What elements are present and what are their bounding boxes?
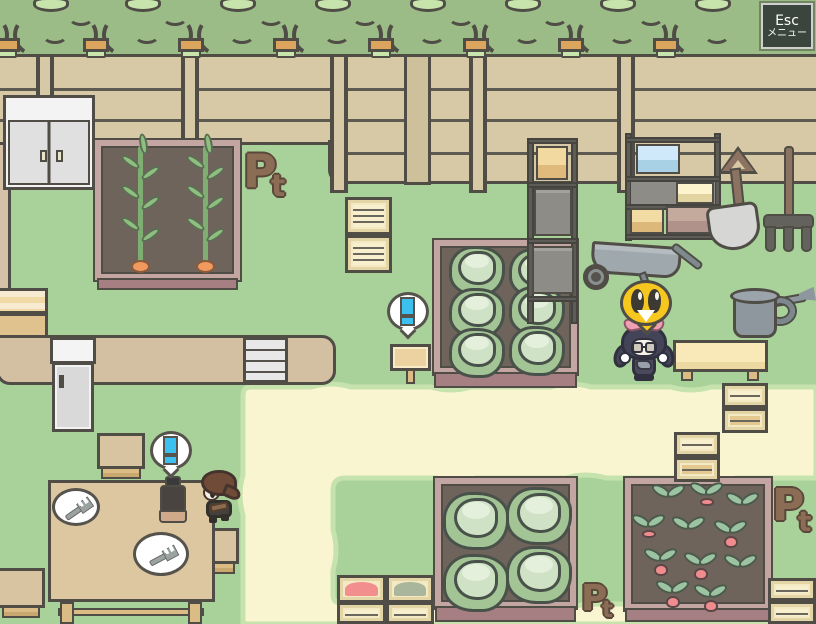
radish-sprout [651, 482, 687, 514]
slat-crate [768, 601, 816, 624]
fence-post [181, 57, 199, 146]
hedge-back-bush [600, 0, 636, 12]
cabinet-doors [8, 120, 90, 185]
hedge-smile-mark [638, 8, 664, 26]
slat-crate [345, 235, 392, 273]
hedge-gap-grass [371, 50, 391, 58]
feet [221, 514, 229, 521]
pitchfork-tine [801, 226, 812, 252]
cabbage [449, 328, 505, 378]
plate [52, 488, 100, 526]
fork-icon [147, 545, 178, 568]
cabbage [443, 492, 509, 550]
work-bench [673, 340, 768, 382]
hedge-smile-mark [258, 8, 284, 26]
shelf-box-tan [630, 208, 664, 234]
slat-crate [674, 457, 720, 482]
shelf-box-gray [534, 188, 572, 236]
hedge-gap-grass [561, 50, 581, 58]
fork-icon [63, 496, 93, 521]
hedge-back-bush [33, 0, 69, 12]
radish-sprout [671, 514, 707, 546]
cabbage [509, 326, 565, 376]
drawer-unit [243, 337, 288, 383]
slat-crate [337, 602, 386, 624]
radish-sprout [689, 480, 725, 512]
wheelbarrow-wheel [583, 264, 609, 290]
paw [657, 352, 669, 364]
stool [0, 568, 45, 618]
radish-sprout [631, 512, 667, 544]
hedge-smile-mark [514, 26, 540, 44]
fence-post [330, 57, 348, 193]
white-cabinet[interactable] [3, 95, 95, 190]
watering-can-rim [730, 288, 780, 304]
paw [619, 352, 631, 364]
radish-sprout [655, 578, 691, 610]
hedge-smile-mark [134, 26, 160, 44]
esc-menu-button[interactable]: Esc メニュー [761, 3, 813, 49]
exclamation-dot-icon [165, 457, 176, 463]
pt-point-marker: P t [581, 581, 607, 617]
hedge-gap-grass [181, 50, 201, 58]
hedge-smile-mark [609, 26, 635, 44]
sign-post [406, 369, 415, 384]
radish-sprout [643, 546, 679, 578]
glasses-icon [645, 342, 656, 353]
cabbage [506, 546, 572, 604]
hedge-gap-grass [276, 50, 296, 58]
shelf-box-gray [532, 246, 574, 294]
fence-gate-board [404, 50, 431, 185]
radish-sprout [693, 582, 729, 614]
storage-box-plain [0, 313, 48, 338]
exclamation-icon [165, 438, 176, 453]
carrot-plant [185, 142, 227, 282]
glasses-bridge [642, 346, 646, 348]
table-leg [60, 602, 74, 624]
cabinet-handle [40, 150, 47, 162]
esc-label: Esc [775, 14, 799, 28]
produce-crate-pink [337, 575, 386, 603]
table-leg [188, 602, 202, 624]
hedge-smile-mark [68, 8, 94, 26]
sign-board [390, 344, 431, 371]
pitchfork [762, 146, 816, 252]
table-crossbar [58, 608, 204, 616]
bench-top [673, 340, 768, 372]
fence-post [469, 57, 487, 193]
pitchfork-tine [765, 226, 776, 252]
hedge-back-bush [315, 0, 351, 12]
pitchfork-tine [783, 226, 794, 252]
hedge-back-bush [695, 0, 731, 12]
hedge-smile-mark [42, 26, 68, 44]
cabbage [443, 554, 509, 612]
slat-crate [386, 602, 434, 624]
hedge-smile-mark [229, 26, 255, 44]
hedge-gap-grass [86, 50, 106, 58]
fridge-handle [59, 375, 64, 388]
hedge-back-bush [125, 0, 161, 12]
wooden-sign[interactable] [390, 344, 431, 384]
hedge-smile-mark [324, 26, 350, 44]
emote-bubble [620, 280, 674, 340]
pink-produce [345, 582, 378, 596]
exclamation-icon [402, 299, 413, 314]
hedge-smile-mark [419, 26, 445, 44]
plate [133, 532, 189, 576]
alert-bubble[interactable] [387, 292, 431, 348]
chest-bow-icon [636, 360, 652, 370]
hedge-back-bush [505, 0, 541, 12]
shelf-box-blue [636, 144, 680, 174]
watering-can [723, 286, 816, 340]
green-produce [394, 582, 426, 596]
fridge-top [50, 337, 96, 364]
cabinet-handle [56, 150, 63, 162]
hedge-back-bush [220, 0, 256, 12]
stool [97, 433, 145, 479]
slat-crate [722, 408, 768, 433]
slat-crate [345, 197, 392, 235]
slat-crate [722, 383, 768, 408]
emote-eye [631, 289, 644, 313]
hedge-smile-mark [704, 26, 730, 44]
feet [634, 374, 654, 381]
hedge-gap-grass [466, 50, 486, 58]
carrot-plant [120, 142, 162, 282]
feet [209, 516, 217, 523]
character-villager[interactable] [197, 470, 239, 524]
hedge-back-bush [410, 0, 446, 12]
radish-sprout [713, 518, 749, 550]
shovel [706, 146, 764, 250]
emote-eye [648, 289, 661, 313]
shelf-box-tan [536, 146, 568, 180]
cabbage [506, 487, 572, 545]
exclamation-dot-icon [402, 318, 413, 324]
pt-point-marker: P t [243, 148, 277, 194]
hedge-smile-mark [162, 8, 188, 26]
radish-sprout [723, 552, 759, 584]
hedge-smile-mark [448, 8, 474, 26]
hedge-gap-grass [0, 50, 17, 58]
hedge-smile-mark [352, 8, 378, 26]
hedge-smile-mark [542, 8, 568, 26]
fridge-door[interactable] [52, 362, 94, 432]
game-viewport: P t P t P t [0, 0, 816, 624]
pitchfork-shaft [784, 146, 794, 220]
alert-bubble[interactable] [150, 431, 194, 487]
dining-table [48, 480, 215, 624]
menu-label: メニュー [767, 29, 807, 39]
slat-crate [674, 432, 720, 457]
cabinet-door-divider [48, 122, 51, 183]
shovel-blade [705, 201, 763, 254]
hedge-row [0, 0, 816, 57]
storage-box-striped [0, 288, 48, 314]
hedge-gap-grass [656, 50, 676, 58]
produce-crate-green [386, 575, 434, 603]
pt-point-marker: P t [772, 484, 804, 528]
tall-storage-shelf [527, 138, 578, 328]
slat-crate [768, 578, 816, 601]
